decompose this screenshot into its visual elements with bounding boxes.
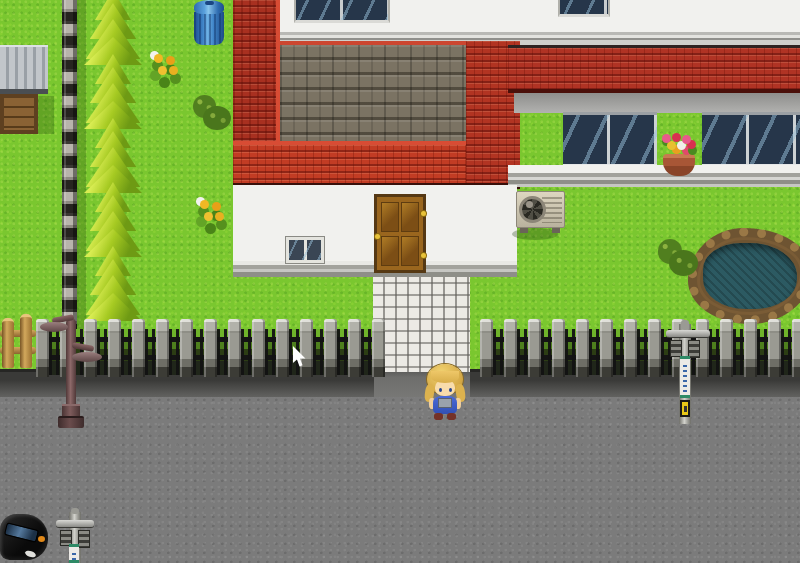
ac-fan (519, 196, 546, 223)
fence-stone-post (300, 319, 313, 377)
fence-iron-pickets (613, 329, 624, 375)
pond (688, 228, 800, 324)
fence-stone-post (156, 319, 169, 377)
flower-cluster (146, 50, 184, 86)
yellow-notice-sign (680, 400, 690, 417)
flower-cluster (192, 196, 234, 236)
fence-stone-post (276, 319, 289, 377)
fence-iron-pickets (589, 329, 600, 375)
door-knob (375, 234, 380, 239)
flower-blooms (154, 54, 163, 63)
fence-stone-post (480, 319, 493, 377)
fence-iron-pickets (169, 329, 180, 375)
character-fringe (431, 371, 459, 383)
shed-metal-roof (0, 45, 48, 94)
sign-band-illegible (680, 356, 690, 398)
fence-iron-pickets (733, 329, 744, 375)
awning-shadow-band (514, 93, 800, 113)
sign-band-illegible (69, 544, 79, 563)
player-character[interactable] (426, 358, 464, 424)
air-conditioner-unit (516, 191, 565, 234)
red-roof-front-slope (233, 141, 480, 189)
character-shoe (434, 413, 443, 420)
fence-stone-post (624, 319, 637, 377)
fence-iron-pickets (565, 329, 576, 375)
door-panel (401, 236, 419, 266)
fence-stone-post (768, 319, 781, 377)
fence-iron-pickets (361, 329, 372, 375)
fence-iron-pickets (121, 329, 132, 375)
flower-pot (663, 154, 695, 176)
fence-iron-pickets (517, 329, 528, 375)
ac-foot (552, 228, 560, 233)
trash-bin-body (194, 12, 224, 45)
fence-iron-pickets (757, 329, 768, 375)
fence-iron-pickets (145, 329, 156, 375)
fence-stone-post (744, 319, 757, 377)
car-signal-light (38, 536, 45, 542)
pole-cap (71, 508, 79, 514)
fence-stone-post (252, 319, 265, 377)
door-panel (381, 236, 399, 266)
front-door[interactable] (374, 194, 426, 273)
door-hinge (421, 253, 426, 258)
notice-glyph (684, 406, 687, 412)
fence-stone-post (324, 319, 337, 377)
fence-iron-pickets (241, 329, 252, 375)
window-flower-box (654, 130, 704, 178)
pole-cap (681, 320, 689, 330)
fence-stone-post (504, 319, 517, 377)
sign-pole[interactable] (664, 320, 712, 424)
flower-box-blooms (662, 134, 671, 143)
fence-stone-post (132, 319, 145, 377)
blue-trash-bin (194, 0, 224, 45)
sign-pole[interactable] (54, 508, 96, 563)
hanging-sign (670, 340, 682, 357)
fence-stone-post (648, 319, 661, 377)
flower-blooms (200, 200, 209, 209)
trash-bin-handle (205, 1, 214, 5)
fence-stone-post (372, 319, 385, 377)
fence-iron-pickets (541, 329, 552, 375)
lamp-head (72, 352, 102, 362)
ac-fan-hub (526, 201, 533, 208)
fence-iron-pickets (313, 329, 324, 375)
character-shoe (447, 413, 456, 420)
large-window (563, 112, 657, 167)
fence-iron-pickets (337, 329, 348, 375)
upper-window (558, 0, 610, 17)
fence-iron-pickets (781, 329, 792, 375)
street-lamp (40, 296, 110, 430)
game-viewport[interactable] (0, 0, 800, 563)
pole-crossbar (666, 330, 710, 337)
fence-stone-post (528, 319, 541, 377)
small-window (286, 237, 324, 263)
fence-iron-pickets (217, 329, 228, 375)
fence-iron-pickets (637, 329, 648, 375)
bush-blob (669, 250, 699, 276)
black-car (0, 508, 50, 563)
door-panel (401, 202, 419, 232)
fence-stone-post (228, 319, 241, 377)
door-panel (381, 202, 399, 232)
fence-stone-post (576, 319, 589, 377)
fence-stone-post (720, 319, 733, 377)
lamp-pole (66, 318, 76, 410)
grass-bush (655, 236, 700, 278)
shed-shadow (38, 96, 54, 134)
sign-glyphs (683, 365, 687, 393)
character-eye (449, 388, 452, 392)
shed-wooden-front (0, 94, 38, 134)
ac-foot (520, 228, 528, 233)
pole-crossbar (56, 520, 94, 527)
red-roof-left-edge (233, 0, 280, 145)
character-bib (438, 398, 452, 408)
red-roof-awning (508, 45, 800, 93)
pond-water (703, 243, 797, 309)
lamp-head (40, 322, 68, 332)
fence-stone-post (552, 319, 565, 377)
bush-blob (203, 106, 231, 131)
fence-stone-post (600, 319, 613, 377)
upper-window (294, 0, 390, 23)
grass-bush (190, 92, 233, 132)
fence-iron-pickets (493, 329, 504, 375)
character-eye (439, 388, 442, 392)
fence-stone-post (180, 319, 193, 377)
fence-iron-pickets (193, 329, 204, 375)
door-hinge (421, 211, 426, 216)
fence-iron-pickets (265, 329, 276, 375)
stone-terrace-roof (276, 41, 470, 145)
large-window (702, 112, 800, 167)
fence-stone-post (204, 319, 217, 377)
sign-glyphs (72, 553, 76, 561)
lamp-base-foot (58, 416, 84, 428)
hanging-sign (78, 530, 90, 548)
fence-stone-post (792, 319, 800, 377)
fence-stone-post (348, 319, 361, 377)
